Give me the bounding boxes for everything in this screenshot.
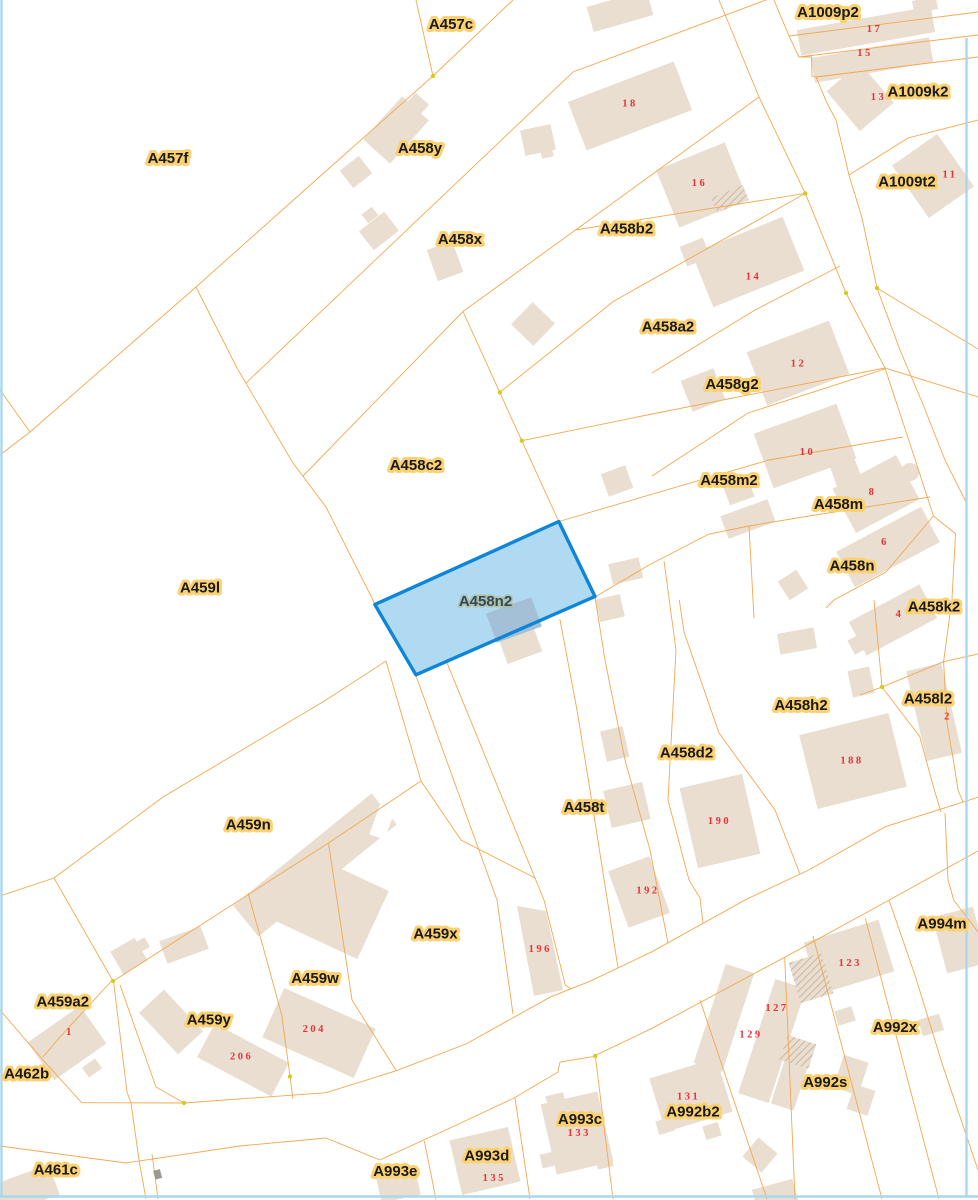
svg-text:A458m: A458m <box>814 496 863 513</box>
svg-text:A459l: A459l <box>180 580 220 597</box>
svg-text:131: 131 <box>677 1092 700 1103</box>
svg-text:A458h2: A458h2 <box>774 697 827 714</box>
svg-text:188: 188 <box>840 756 863 767</box>
svg-text:A458y: A458y <box>398 140 443 157</box>
svg-text:A459w: A459w <box>291 970 339 987</box>
svg-text:A459x: A459x <box>413 926 458 943</box>
svg-text:192: 192 <box>636 886 659 897</box>
svg-text:A458t: A458t <box>564 799 605 816</box>
svg-text:A458c2: A458c2 <box>390 457 443 474</box>
svg-text:16: 16 <box>692 178 708 189</box>
svg-text:A458k2: A458k2 <box>908 599 961 616</box>
svg-text:A992x: A992x <box>873 1019 918 1036</box>
svg-text:1: 1 <box>66 1027 74 1038</box>
svg-text:14: 14 <box>746 272 762 283</box>
svg-text:A458g2: A458g2 <box>705 376 758 393</box>
svg-text:190: 190 <box>708 816 731 827</box>
svg-text:196: 196 <box>529 944 552 955</box>
svg-text:A1009t2: A1009t2 <box>878 174 936 191</box>
svg-text:A993c: A993c <box>558 1111 602 1128</box>
svg-text:129: 129 <box>739 1030 762 1041</box>
svg-text:2: 2 <box>944 712 952 723</box>
svg-text:123: 123 <box>839 958 862 969</box>
svg-text:A993d: A993d <box>464 1148 509 1165</box>
svg-text:A1009p2: A1009p2 <box>797 4 859 21</box>
svg-text:A458n: A458n <box>829 558 874 575</box>
svg-text:A458d2: A458d2 <box>660 745 713 762</box>
svg-text:A461c: A461c <box>34 1161 78 1178</box>
svg-text:6: 6 <box>881 537 889 548</box>
svg-text:A458a2: A458a2 <box>642 319 695 336</box>
svg-text:A459n: A459n <box>226 817 271 834</box>
svg-text:15: 15 <box>857 48 873 59</box>
svg-text:11: 11 <box>943 170 958 181</box>
svg-text:A992s: A992s <box>803 1074 847 1091</box>
svg-text:A457c: A457c <box>429 16 473 33</box>
svg-text:A993e: A993e <box>373 1163 417 1180</box>
svg-text:8: 8 <box>869 487 877 498</box>
svg-text:127: 127 <box>765 1003 788 1014</box>
svg-text:A459y: A459y <box>187 1011 232 1028</box>
svg-text:17: 17 <box>867 24 883 35</box>
svg-text:A462b: A462b <box>4 1066 49 1083</box>
svg-text:A458n2: A458n2 <box>459 593 512 610</box>
svg-text:13: 13 <box>871 92 887 103</box>
svg-text:135: 135 <box>483 1173 506 1184</box>
svg-text:10: 10 <box>800 447 816 458</box>
svg-text:204: 204 <box>303 1024 326 1035</box>
svg-text:18: 18 <box>622 99 638 110</box>
svg-text:A458x: A458x <box>438 231 483 248</box>
svg-text:A994m: A994m <box>917 916 966 933</box>
svg-text:133: 133 <box>568 1128 591 1139</box>
svg-text:A1009k2: A1009k2 <box>888 84 949 101</box>
svg-text:A458b2: A458b2 <box>600 221 653 238</box>
svg-text:12: 12 <box>791 359 807 370</box>
svg-text:A458l2: A458l2 <box>904 691 952 708</box>
svg-text:A459a2: A459a2 <box>37 994 90 1011</box>
svg-text:A992b2: A992b2 <box>666 1104 719 1121</box>
svg-text:206: 206 <box>230 1052 253 1063</box>
svg-text:4: 4 <box>896 609 904 620</box>
svg-text:A458m2: A458m2 <box>700 472 758 489</box>
svg-text:A457f: A457f <box>148 150 190 167</box>
